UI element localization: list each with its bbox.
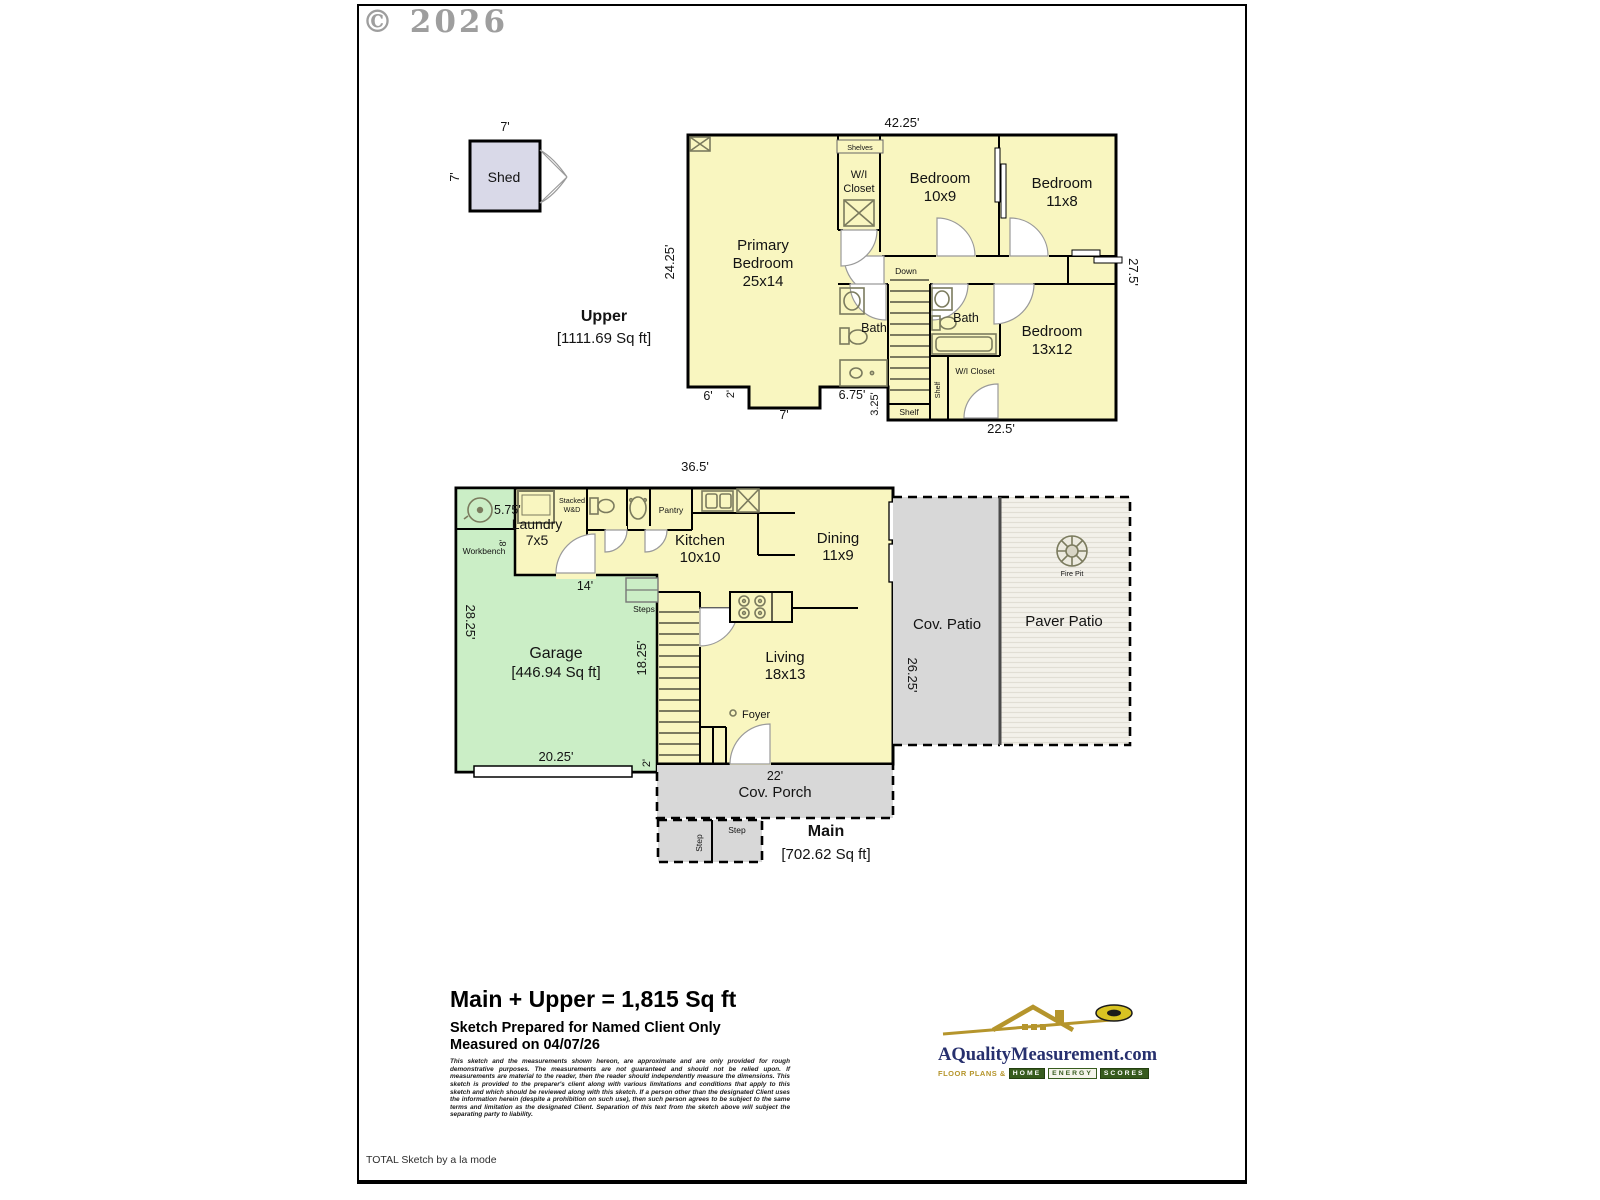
garage-steps-box: [626, 578, 658, 602]
tagline-tile-home: HOME: [1009, 1068, 1045, 1079]
upper-title: Upper: [581, 308, 627, 325]
dining-dim: 11x9: [822, 547, 853, 564]
entry-steps-fill: [658, 820, 762, 862]
measured-on-line: Measured on 04/07/26: [450, 1037, 790, 1054]
dining-label: Dining: [817, 530, 860, 547]
copyright-watermark: © 2026: [362, 4, 508, 40]
disclaimer-text: This sketch and the measurements shown h…: [450, 1058, 790, 1118]
foyer-label: Foyer: [742, 709, 770, 721]
living-label: Living: [765, 649, 804, 666]
upper-dim-right: 27.5': [1126, 258, 1141, 286]
main-dim-left: 28.25': [463, 604, 478, 639]
upper-dim-b4: 6.75': [839, 388, 866, 402]
brand-name: AQualityMeasurement.com: [938, 1045, 1143, 1066]
main-dim-2: 2': [641, 759, 653, 767]
upper-shelves-label: Shelves: [847, 143, 873, 152]
upper-down-label: Down: [895, 266, 917, 276]
upper-room-bed2: Bedroom: [910, 170, 971, 187]
upper-shelf-v-label: Shelf: [933, 382, 942, 398]
main-dim-top: 36.5': [681, 459, 709, 474]
cov-porch-label: Cov. Porch: [738, 784, 811, 801]
software-credit: TOTAL Sketch by a la mode: [366, 1154, 497, 1166]
garage-door: [474, 766, 632, 777]
tagline-tile-scores: SCORES: [1100, 1068, 1149, 1079]
fire-pit-icon: [1057, 536, 1087, 566]
prepared-for-line: Sketch Prepared for Named Client Only: [450, 1020, 790, 1037]
steps-label: Steps: [633, 604, 655, 614]
entry-step2-label: Step: [728, 825, 746, 835]
logo-house-tape-icon: [938, 998, 1138, 1040]
upper-room-bed4-dim: 13x12: [1032, 341, 1073, 358]
upper-room-bed2-dim: 10x9: [924, 188, 957, 205]
laundry-label: Laundry: [512, 516, 563, 532]
floor-plan-canvas: Shed 7' 7': [0, 0, 1600, 1200]
upper-area: [1111.69 Sq ft]: [557, 330, 651, 347]
shed-dim-side: 7': [448, 172, 462, 181]
cov-porch-dim: 22': [767, 769, 783, 783]
living-dim: 18x13: [765, 666, 806, 683]
upper-bath2-label: Bath: [953, 311, 979, 325]
garage-area: [446.94 Sq ft]: [511, 664, 600, 681]
upper-room-primary3: 25x14: [743, 273, 784, 290]
main-area: [702.62 Sq ft]: [781, 846, 870, 863]
upper-wic-label2: Closet: [843, 183, 874, 195]
upper-dim-b6: 22.5': [987, 421, 1015, 436]
shed-label: Shed: [488, 169, 521, 185]
summary-block: Main + Upper = 1,815 Sq ft Sketch Prepar…: [450, 986, 790, 1119]
upper-room-bed3-dim: 11x8: [1046, 193, 1077, 210]
cov-patio-label: Cov. Patio: [913, 616, 981, 633]
main-dim-stairs: 18.25': [634, 640, 649, 675]
upper-bath1-label: Bath: [861, 321, 887, 335]
workbench-label: Workbench: [463, 546, 506, 556]
upper-dim-b3: 7': [779, 408, 788, 422]
upper-dim-left: 24.25': [662, 244, 677, 279]
upper-room-bed4: Bedroom: [1022, 323, 1083, 340]
shed-dim-top: 7': [500, 120, 509, 134]
kitchen-label: Kitchen: [675, 532, 725, 549]
main-floor-plan: 5.75' 8' Workbench Stacked W&D Laundry 7…: [456, 459, 897, 777]
main-title: Main: [808, 823, 844, 840]
laundry-dim: 7x5: [526, 532, 549, 548]
company-logo: AQualityMeasurement.com Floor Plans & HO…: [938, 998, 1143, 1079]
fire-pit-label: Fire Pit: [1061, 569, 1084, 578]
main-dim-bottom: 20.25': [538, 749, 573, 764]
upper-shelf-h-label: Shelf: [899, 407, 919, 417]
upper-dim-b1: 6': [703, 389, 712, 403]
upper-room-primary2: Bedroom: [733, 255, 794, 272]
upper-wic2-label: W/I Closet: [955, 366, 995, 376]
entry-step1-label: Step: [694, 834, 704, 852]
total-sqft-headline: Main + Upper = 1,815 Sq ft: [450, 986, 790, 1013]
main-dim-14: 14': [577, 579, 593, 593]
upper-dim-b2: 2': [725, 390, 737, 398]
logo-tagline: Floor Plans & HOME ENERGY SCORES: [938, 1068, 1143, 1079]
garage-label: Garage: [529, 645, 582, 662]
main-dim-wh: 5.75': [494, 503, 521, 517]
upper-dim-b5: 3.25': [869, 392, 881, 416]
kitchen-dim: 10x10: [680, 549, 721, 566]
cooktop-island: [730, 592, 792, 622]
stacked-wd-label1: Stacked: [559, 496, 585, 505]
tagline-tile-energy: ENERGY: [1048, 1068, 1097, 1079]
upper-room-primary: Primary: [737, 237, 789, 254]
upper-wic-label: W/I: [851, 169, 868, 181]
paver-patio-label: Paver Patio: [1025, 613, 1103, 630]
stacked-wd-label2: W&D: [564, 505, 581, 514]
tagline-floor-plans: Floor Plans &: [938, 1069, 1006, 1078]
upper-dim-top: 42.25': [884, 115, 919, 130]
upper-room-bed3: Bedroom: [1032, 175, 1093, 192]
tape-measure-icon: [1096, 1005, 1132, 1021]
cov-patio-dim: 26.25': [905, 657, 920, 692]
pantry-label: Pantry: [659, 505, 684, 515]
